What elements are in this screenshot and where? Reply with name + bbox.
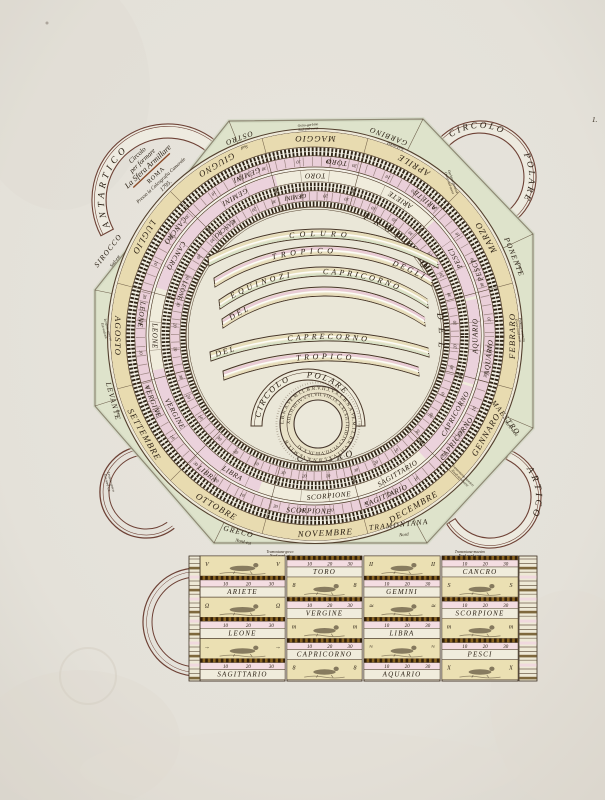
svg-text:SCORPIONE: SCORPIONE [286,505,331,516]
svg-text:E: E [436,326,446,333]
svg-text:LEONE: LEONE [227,629,256,637]
svg-text:1.: 1. [592,116,598,124]
svg-text:m: m [447,624,452,630]
svg-text:LIBRA: LIBRA [388,629,414,637]
svg-text:8: 8 [354,666,357,672]
svg-text:m: m [292,624,297,630]
svg-text:Nord: Nord [398,532,409,538]
svg-text:TORO: TORO [313,568,336,576]
svg-text:→: → [275,645,281,651]
svg-text:AQUARIO: AQUARIO [472,318,480,355]
svg-text:SAGITTARIO: SAGITTARIO [217,671,267,679]
svg-text:→: → [204,645,210,651]
svg-text:ARIETE: ARIETE [226,588,258,596]
svg-text:X: X [446,666,451,672]
svg-text:CANCRO: CANCRO [463,568,498,576]
svg-text:8: 8 [293,666,296,672]
svg-text:TROPICO: TROPICO [296,352,355,363]
svg-text:SCORPIONE: SCORPIONE [456,609,505,617]
svg-text:MAGGIO: MAGGIO [294,134,336,144]
svg-text:8: 8 [293,583,296,589]
svg-text:LEONE: LEONE [150,322,158,349]
svg-text:PESCI: PESCI [466,651,492,659]
svg-text:X: X [508,666,513,672]
svg-text:VERGINE: VERGINE [306,609,344,617]
svg-text:L: L [436,341,446,348]
svg-text:GEMINI: GEMINI [386,588,418,596]
svg-text:CAPRICORNO: CAPRICORNO [297,651,353,659]
svg-text:m: m [353,624,358,630]
svg-text:Ω: Ω [205,603,210,609]
svg-text:AGOSTO: AGOSTO [113,315,123,356]
svg-text:m: m [509,624,514,630]
svg-text:AQUARIO: AQUARIO [382,671,422,679]
svg-text:8: 8 [354,583,357,589]
svg-text:S: S [510,583,513,589]
svg-text:TORO: TORO [304,171,325,179]
svg-text:S: S [448,583,451,589]
svg-text:Ω: Ω [276,603,281,609]
